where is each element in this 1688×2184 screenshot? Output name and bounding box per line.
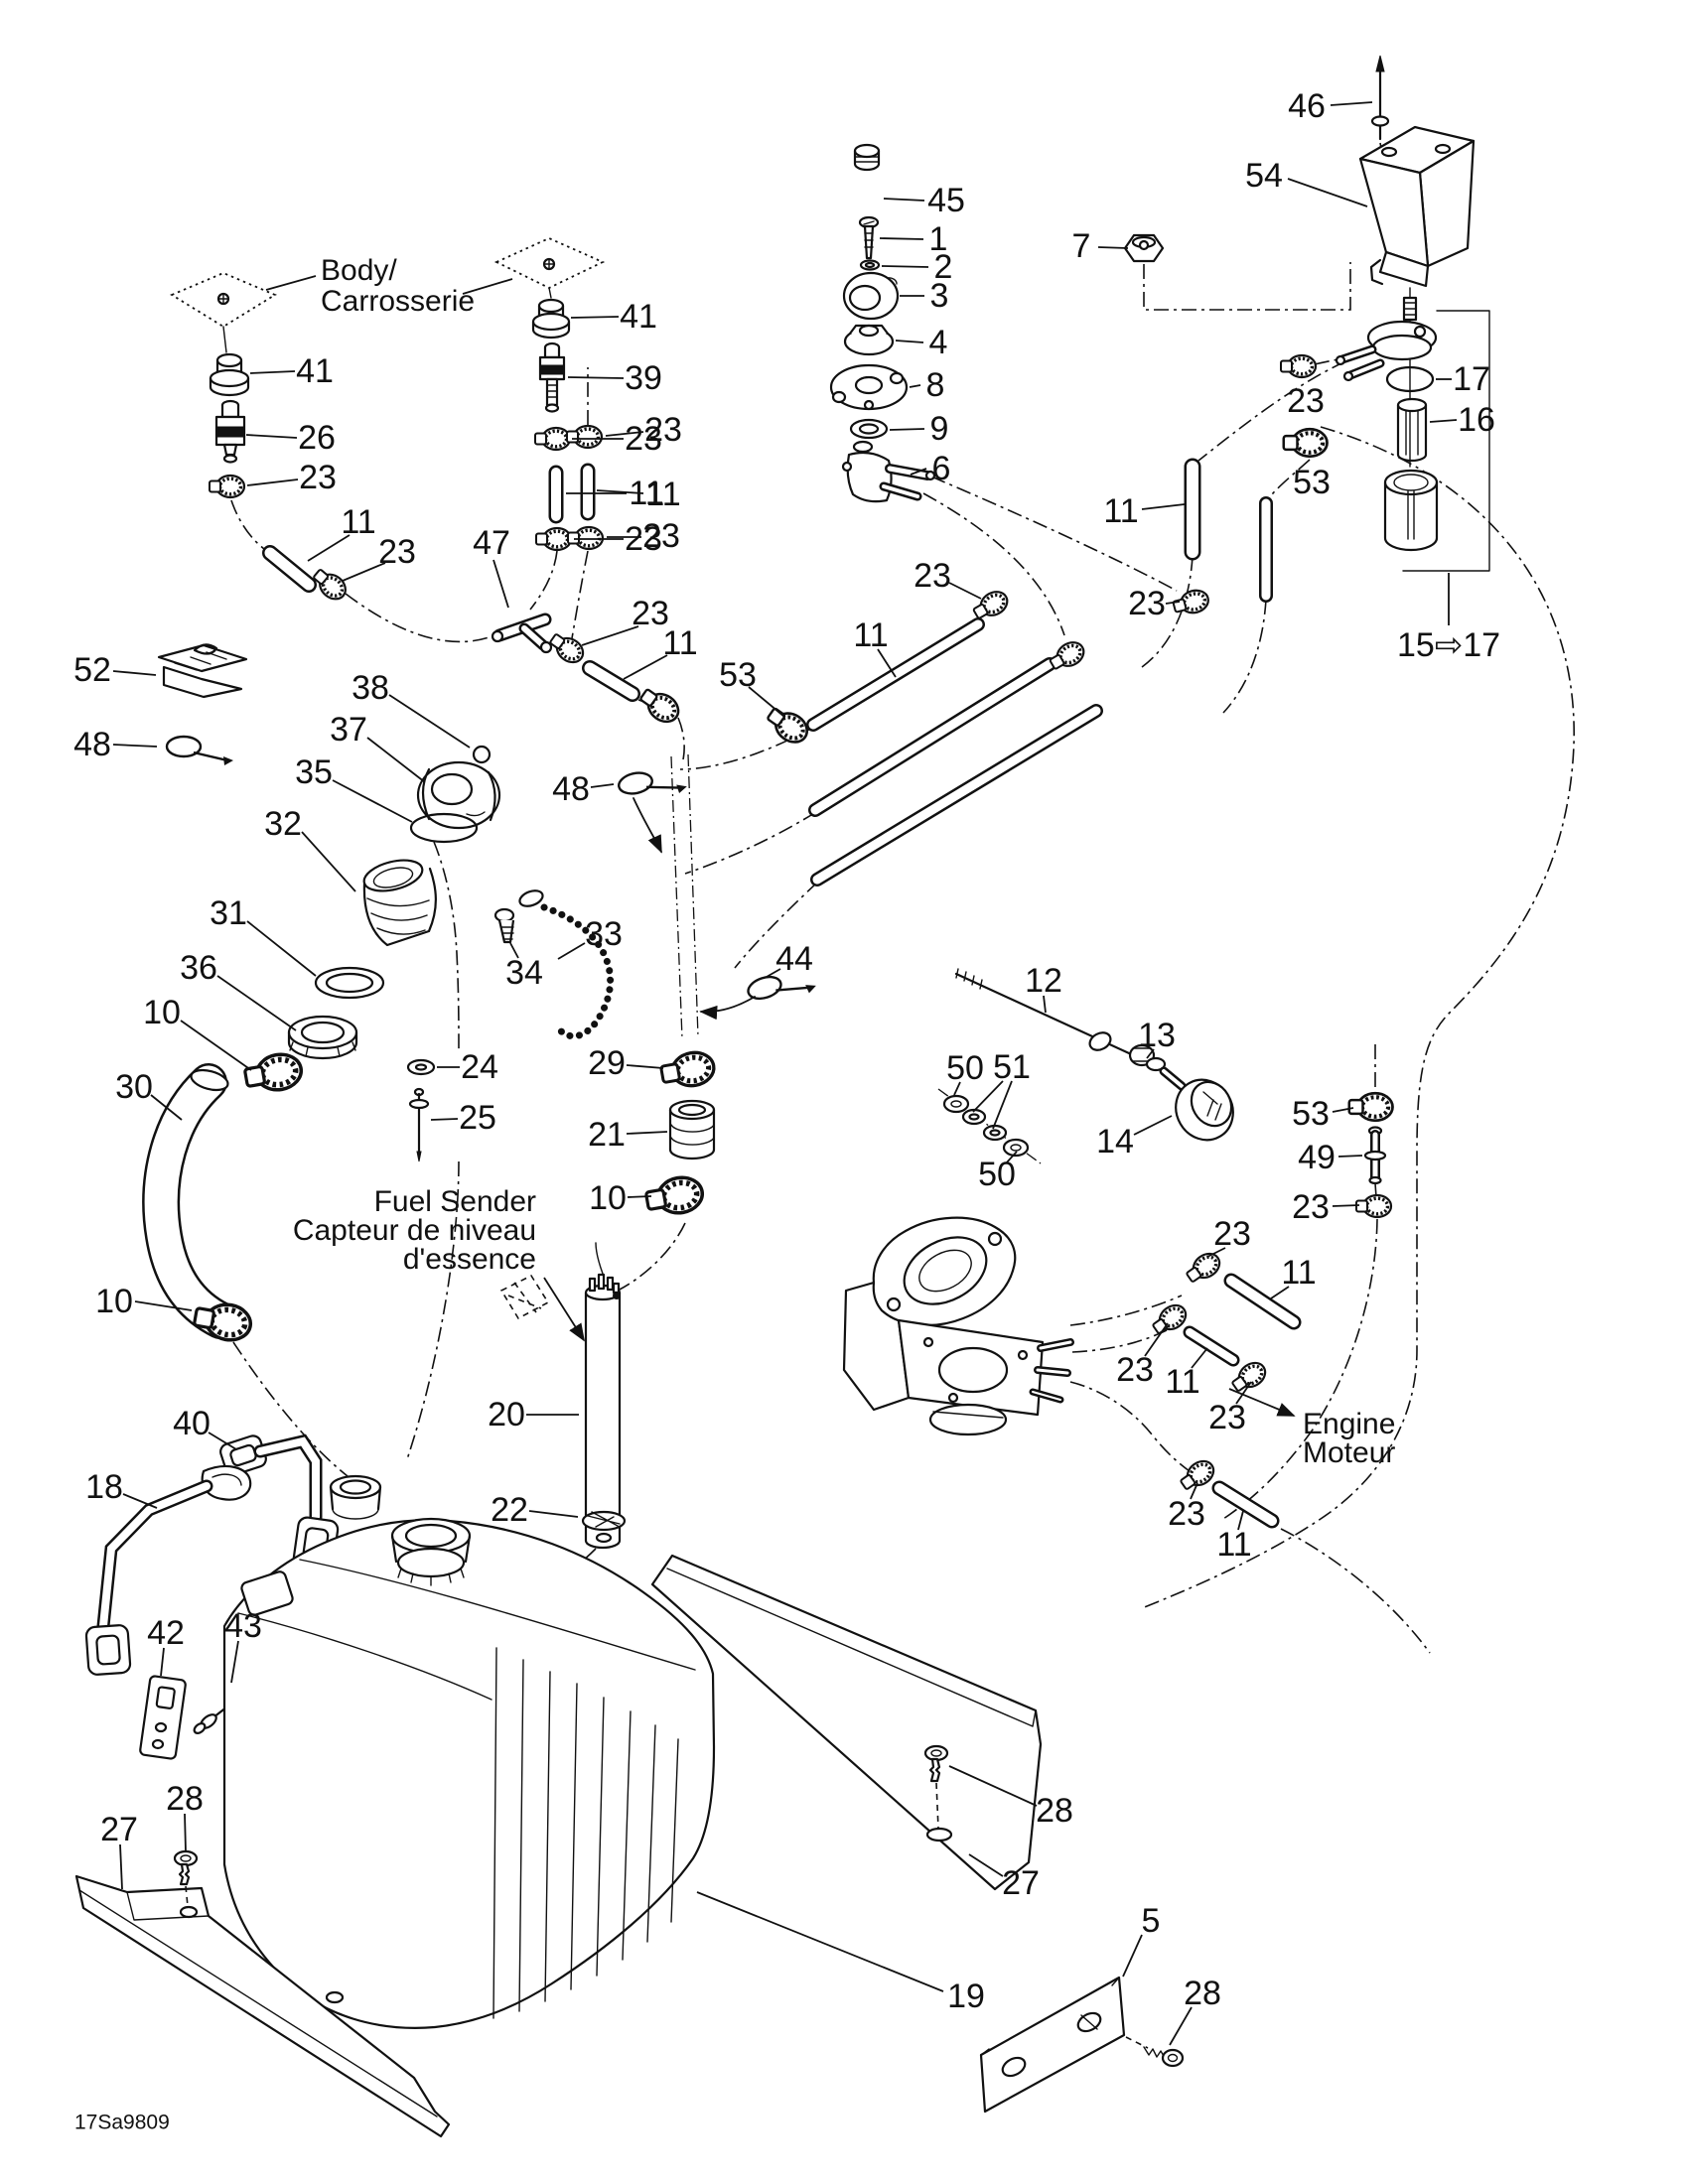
callout-46-leader bbox=[1331, 102, 1372, 105]
retaining-clip-52 bbox=[159, 644, 246, 697]
callout-18: 18 bbox=[85, 1468, 123, 1506]
callout-29: 29 bbox=[588, 1044, 626, 1082]
clamp-53-low bbox=[636, 684, 683, 728]
callout-19-leader bbox=[697, 1892, 943, 1991]
elbow-hose-30 bbox=[161, 1066, 229, 1320]
callout-31: 31 bbox=[210, 894, 247, 932]
fuel-sender-pointer-box bbox=[501, 1276, 548, 1318]
callout-4: 4 bbox=[929, 324, 948, 361]
callout-11-e: 11 bbox=[645, 476, 680, 513]
callout-11-a-leader bbox=[1142, 504, 1185, 509]
callout-49-leader bbox=[1338, 1156, 1362, 1157]
callout-24: 24 bbox=[461, 1048, 498, 1086]
callout-52: 52 bbox=[73, 651, 111, 689]
callout-23-j-leader bbox=[582, 626, 638, 645]
callout-7: 7 bbox=[1072, 227, 1091, 265]
callout-23-k: 23 bbox=[1292, 1188, 1330, 1226]
callout-26: 26 bbox=[298, 419, 336, 457]
label-fuel-sender-leader bbox=[544, 1278, 584, 1340]
callout-23-d: 23 bbox=[299, 459, 337, 496]
callout-41-left-leader bbox=[250, 371, 295, 373]
callout-6: 6 bbox=[932, 450, 951, 487]
callout-23-e-leader bbox=[343, 563, 385, 581]
callout-14-leader bbox=[1134, 1116, 1172, 1135]
callout-54: 54 bbox=[1245, 157, 1283, 195]
callout-41-right: 41 bbox=[620, 298, 657, 336]
callout-54-leader bbox=[1288, 179, 1367, 206]
callout-22: 22 bbox=[491, 1491, 528, 1529]
label-drawing-code: 17Sa9809 bbox=[74, 2112, 170, 2134]
fuel-tank-19 bbox=[224, 1476, 714, 2028]
choke-hardware-50-51 bbox=[944, 1096, 1028, 1156]
fuel-line-tubes-right bbox=[1193, 467, 1266, 596]
callout-40: 40 bbox=[173, 1405, 211, 1442]
cable-tie-48-mid bbox=[617, 763, 688, 805]
clamp-23-valve bbox=[1281, 355, 1316, 377]
callout-27-a-leader bbox=[120, 1844, 122, 1889]
callout-23-c: 23 bbox=[1128, 585, 1166, 622]
callout-19: 19 bbox=[947, 1978, 985, 2015]
callout-52-leader bbox=[113, 671, 156, 675]
fuel-cap-37 bbox=[418, 762, 499, 828]
tie-44-arrow bbox=[701, 997, 755, 1012]
callout-32-leader bbox=[302, 832, 355, 891]
callout-36: 36 bbox=[180, 949, 217, 987]
callout-41-right-leader bbox=[571, 317, 619, 318]
callout-3: 3 bbox=[930, 277, 949, 315]
callout-11-f: 11 bbox=[662, 624, 697, 662]
callout-8: 8 bbox=[926, 366, 945, 404]
callout-8-leader bbox=[910, 385, 920, 387]
fuel-sender-20 bbox=[583, 1243, 625, 1548]
tie-48-arrow bbox=[633, 798, 661, 852]
clamp-23-mid2 bbox=[568, 527, 603, 549]
ball-38 bbox=[474, 747, 490, 762]
gasket-31 bbox=[316, 968, 383, 998]
callout-48-b: 48 bbox=[73, 726, 111, 763]
callout-17: 17 bbox=[1453, 360, 1490, 398]
clamp-23-eng5 bbox=[1356, 1195, 1391, 1217]
callout-48-a: 48 bbox=[552, 770, 590, 808]
callout-13: 13 bbox=[1138, 1017, 1176, 1054]
bracket-42 bbox=[140, 1676, 187, 1759]
callout-50-a: 50 bbox=[946, 1049, 984, 1087]
screw-34 bbox=[495, 909, 513, 942]
label-body-leader bbox=[266, 276, 316, 290]
callout-23-e: 23 bbox=[378, 533, 416, 571]
callout-25: 25 bbox=[459, 1099, 496, 1137]
callout-53-b-leader bbox=[749, 687, 784, 717]
clamp-23-low bbox=[546, 629, 587, 667]
callout-26-leader bbox=[246, 435, 297, 438]
callout-23-a: 23 bbox=[1287, 382, 1325, 420]
callout-41-left: 41 bbox=[296, 352, 334, 390]
body-panel-left bbox=[172, 273, 275, 352]
clamp-53-eng bbox=[1349, 1093, 1393, 1121]
callout-44: 44 bbox=[775, 940, 813, 978]
callout-11-g: 11 bbox=[1281, 1254, 1316, 1292]
callout-9: 9 bbox=[930, 410, 949, 448]
callout-31-leader bbox=[247, 921, 316, 976]
callout-11-g-leader bbox=[1271, 1287, 1289, 1298]
callout-28-c: 28 bbox=[1184, 1975, 1221, 2012]
callout-18-leader bbox=[123, 1494, 157, 1508]
callout-10-a-leader bbox=[181, 1021, 251, 1070]
fuel-vent-fitting-stack bbox=[831, 145, 934, 501]
callout-14: 14 bbox=[1096, 1123, 1134, 1160]
bracket-plate-5 bbox=[981, 1978, 1183, 2112]
callout-11-h: 11 bbox=[1165, 1363, 1199, 1401]
clamp-29 bbox=[659, 1049, 716, 1091]
nut-7 bbox=[1125, 235, 1163, 261]
pin-25 bbox=[410, 1089, 428, 1161]
callout-47-leader bbox=[493, 560, 508, 608]
callout-28-a-leader bbox=[185, 1814, 186, 1851]
body-panel-right bbox=[496, 238, 603, 298]
callout-46: 46 bbox=[1288, 87, 1326, 125]
filler-neck-32 bbox=[361, 855, 436, 945]
callout-45-leader bbox=[884, 199, 924, 201]
callout-23-n: 23 bbox=[1208, 1399, 1246, 1436]
inline-fitting-49 bbox=[1365, 1128, 1385, 1184]
callout-23-h: 23 bbox=[644, 411, 682, 449]
callout-37: 37 bbox=[330, 711, 367, 749]
clamp-53-low2 bbox=[764, 703, 813, 749]
callout-33-leader bbox=[558, 943, 585, 959]
callout-35-leader bbox=[333, 780, 412, 822]
callout-23-l: 23 bbox=[1213, 1215, 1251, 1253]
callout-25-leader bbox=[431, 1119, 458, 1120]
callout-12: 12 bbox=[1025, 962, 1062, 1000]
callout-42-leader bbox=[161, 1648, 164, 1676]
callout-43: 43 bbox=[224, 1607, 262, 1645]
callout-9-leader bbox=[890, 429, 924, 430]
callout-27-b: 27 bbox=[1002, 1864, 1040, 1902]
callout-33: 33 bbox=[585, 915, 623, 953]
fuel-filler-cap-assembly bbox=[289, 747, 499, 1058]
callout-32: 32 bbox=[264, 805, 302, 843]
callout-53-c: 53 bbox=[1292, 1095, 1330, 1133]
callout-11-i: 11 bbox=[1216, 1526, 1251, 1564]
callout-48-b-leader bbox=[113, 745, 157, 747]
callout-16: 16 bbox=[1458, 401, 1495, 439]
clamp-53-valve bbox=[1284, 429, 1328, 457]
clamp-10-neck bbox=[243, 1051, 304, 1095]
callout-30: 30 bbox=[115, 1068, 153, 1106]
fuel-system-exploded-diagram: 451234896746541716235315⇨1711232311Body/… bbox=[0, 0, 1688, 2184]
callout-35: 35 bbox=[295, 753, 333, 791]
callout-22-leader bbox=[529, 1511, 578, 1517]
callout-range-15-17: 15⇨17 bbox=[1397, 626, 1500, 664]
callout-23-b: 23 bbox=[914, 557, 951, 595]
callout-34: 34 bbox=[505, 954, 543, 992]
choke-knob-14 bbox=[1164, 1069, 1244, 1151]
callout-10-c: 10 bbox=[589, 1179, 627, 1217]
carburetor bbox=[844, 1218, 1070, 1434]
callout-4-leader bbox=[896, 341, 923, 342]
callout-7-leader bbox=[1098, 247, 1128, 248]
callout-5: 5 bbox=[1142, 1902, 1161, 1940]
callout-11-f-leader bbox=[624, 655, 667, 679]
tank-vent-neck bbox=[331, 1476, 380, 1519]
callout-23-o: 23 bbox=[1168, 1495, 1205, 1533]
callout-50-b: 50 bbox=[978, 1156, 1016, 1193]
clamp-10-sender bbox=[644, 1174, 705, 1218]
callout-21: 21 bbox=[588, 1116, 626, 1154]
callout-21-leader bbox=[627, 1132, 667, 1134]
clamp-23-mid bbox=[567, 426, 602, 448]
callout-47: 47 bbox=[473, 524, 510, 562]
callout-23-i: 23 bbox=[642, 517, 680, 555]
support-bracket-54 bbox=[1360, 127, 1474, 313]
callout-28-b: 28 bbox=[1036, 1792, 1073, 1830]
callout-28-a: 28 bbox=[166, 1780, 204, 1818]
callout-16-leader bbox=[1430, 420, 1457, 422]
callout-23-d-leader bbox=[247, 479, 298, 485]
grommet-41-right bbox=[533, 300, 569, 338]
cable-tie-48-left bbox=[167, 737, 233, 765]
callout-38-leader bbox=[389, 695, 470, 748]
callout-36-leader bbox=[217, 976, 296, 1030]
label-body: Body/Carrosserie bbox=[321, 254, 475, 318]
clamp-23-eng1 bbox=[1183, 1249, 1223, 1287]
rubber-sleeve-21 bbox=[670, 1101, 714, 1159]
callout-27-a: 27 bbox=[100, 1811, 138, 1848]
spike-46 bbox=[1372, 56, 1388, 139]
callout-11-c-leader bbox=[308, 535, 350, 561]
check-valve-26 bbox=[216, 401, 244, 463]
callout-23-b-leader bbox=[949, 583, 981, 599]
callout-49: 49 bbox=[1298, 1139, 1336, 1176]
callout-29-leader bbox=[627, 1065, 663, 1068]
callout-51: 51 bbox=[993, 1048, 1031, 1086]
parts-diagram-page: 451234896746541716235315⇨1711232311Body/… bbox=[0, 0, 1688, 2184]
callout-48-a-leader bbox=[591, 784, 614, 787]
callout-2-leader bbox=[882, 266, 928, 267]
washer-24 bbox=[408, 1060, 434, 1074]
callout-39-leader bbox=[568, 377, 624, 378]
check-valve-39 bbox=[540, 343, 564, 412]
callout-28-c-leader bbox=[1170, 2007, 1192, 2045]
callout-10-b: 10 bbox=[95, 1283, 133, 1320]
callout-45: 45 bbox=[927, 182, 965, 219]
callout-11-c: 11 bbox=[341, 503, 375, 541]
label-engine: EngineMoteur bbox=[1303, 1408, 1395, 1469]
callout-1-leader bbox=[880, 238, 923, 239]
callout-38: 38 bbox=[352, 669, 389, 707]
grommet-41-left bbox=[211, 354, 248, 395]
clamp-23-right-col2 bbox=[536, 528, 571, 550]
t-fitting-47 bbox=[492, 619, 551, 652]
callout-11-b: 11 bbox=[853, 616, 888, 654]
screw-28-bottom bbox=[1144, 2047, 1183, 2066]
callout-5-leader bbox=[1123, 1935, 1142, 1977]
callout-37-leader bbox=[367, 738, 425, 782]
callout-53-a: 53 bbox=[1293, 464, 1331, 501]
callout-42: 42 bbox=[147, 1614, 185, 1652]
callout-23-k-leader bbox=[1333, 1205, 1359, 1206]
label-fuel-sender: Fuel SenderCapteur de niveaud'essence bbox=[293, 1185, 536, 1276]
callout-11-a: 11 bbox=[1103, 492, 1138, 530]
callout-23-m: 23 bbox=[1116, 1351, 1154, 1389]
clamp-23-left bbox=[210, 476, 244, 497]
callout-10-a: 10 bbox=[143, 994, 181, 1031]
clamp-23-right-col bbox=[535, 428, 570, 450]
callout-39: 39 bbox=[625, 359, 662, 397]
callout-10-c-leader bbox=[628, 1196, 651, 1197]
callout-20: 20 bbox=[488, 1396, 525, 1433]
lock-nut-36 bbox=[289, 1017, 356, 1058]
